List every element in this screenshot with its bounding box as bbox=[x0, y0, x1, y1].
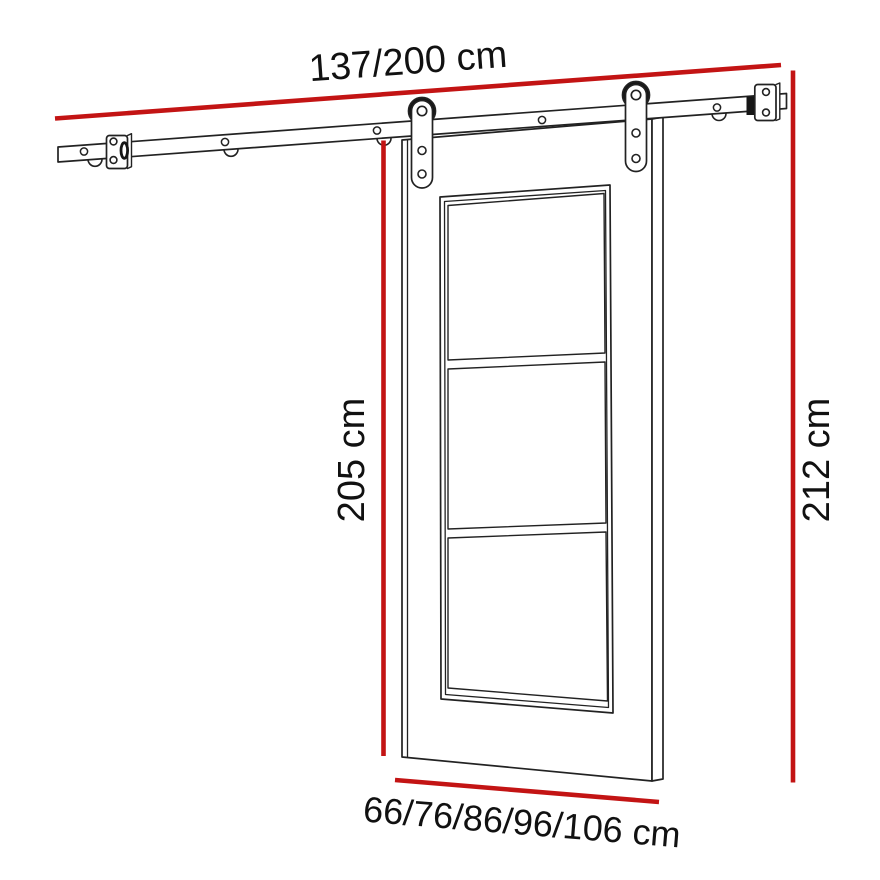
roller-hub-right bbox=[631, 90, 640, 99]
drawing-canvas: 137/200 cm 205 cm 212 cm 66/76/86/96/106… bbox=[0, 0, 880, 880]
door-hanger-left bbox=[409, 98, 436, 189]
label-track-width: 137/200 cm bbox=[307, 34, 508, 90]
door-hanger-right bbox=[623, 82, 650, 172]
label-overall-height: 212 cm bbox=[796, 398, 838, 523]
strap-left-screw-1 bbox=[418, 147, 426, 155]
glazing-frame-outer bbox=[440, 185, 613, 713]
rail-hole-3 bbox=[373, 127, 380, 134]
strap-right-screw-2 bbox=[632, 155, 640, 163]
rail-hole-1 bbox=[80, 148, 87, 155]
bracket-left-screw-bottom bbox=[110, 157, 117, 164]
label-door-height: 205 cm bbox=[331, 398, 373, 523]
door-side-edge bbox=[652, 117, 663, 781]
bracket-right-screw-top bbox=[763, 89, 770, 96]
roller-hub-left bbox=[417, 106, 426, 115]
drawing-lines bbox=[58, 82, 787, 782]
strap-right-screw-1 bbox=[632, 129, 640, 137]
bracket-right-screw-bottom bbox=[763, 109, 770, 116]
wall-bracket-right bbox=[747, 83, 780, 121]
door-panel bbox=[402, 117, 663, 781]
rail-hole-4 bbox=[538, 116, 545, 123]
wall-bracket-left bbox=[107, 134, 132, 169]
rail-hole-2 bbox=[221, 138, 228, 145]
rail-hole-5 bbox=[713, 104, 720, 111]
sliding-door-diagram: 137/200 cm 205 cm 212 cm 66/76/86/96/106… bbox=[0, 0, 880, 880]
strap-left-screw-2 bbox=[418, 170, 426, 178]
bracket-left-screw-top bbox=[110, 138, 117, 145]
